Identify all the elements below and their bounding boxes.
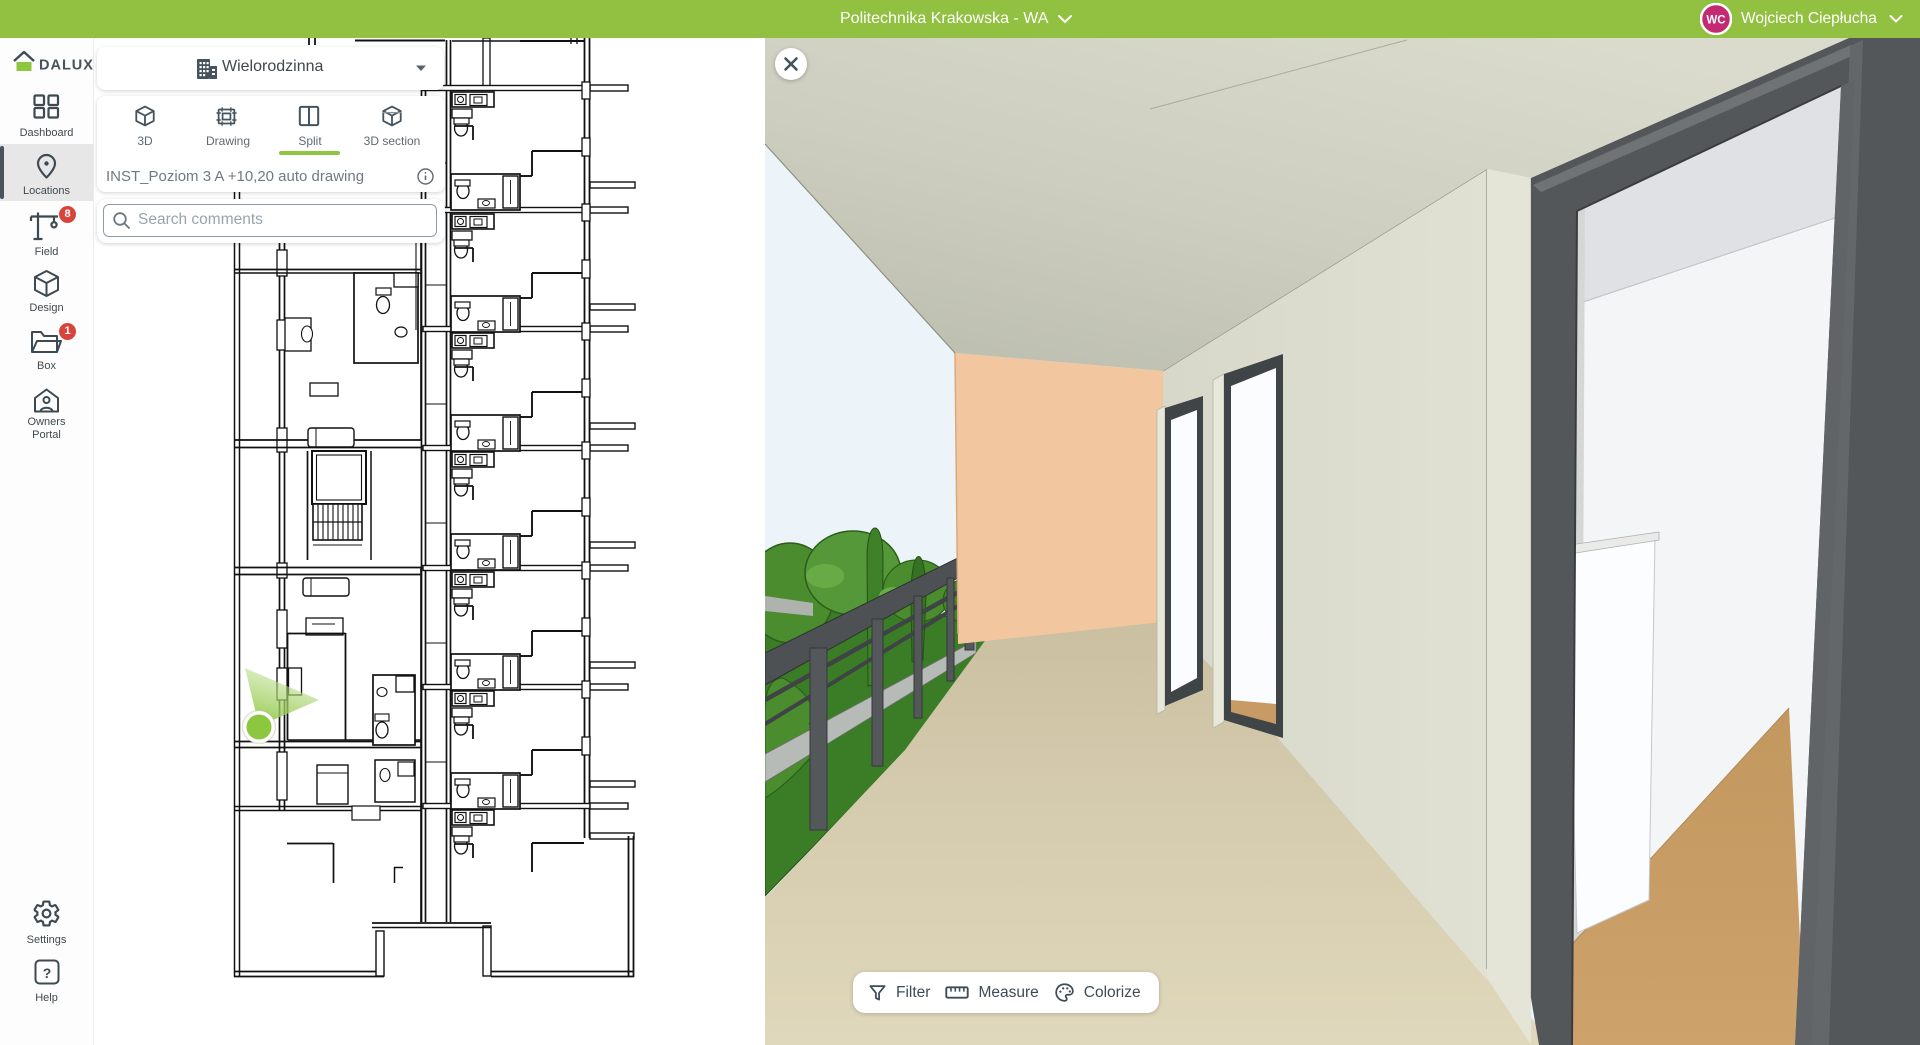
svg-text:?: ? [43, 965, 52, 981]
svg-text:DALUX: DALUX [39, 58, 94, 74]
svg-text:WC: WC [1706, 15, 1725, 27]
